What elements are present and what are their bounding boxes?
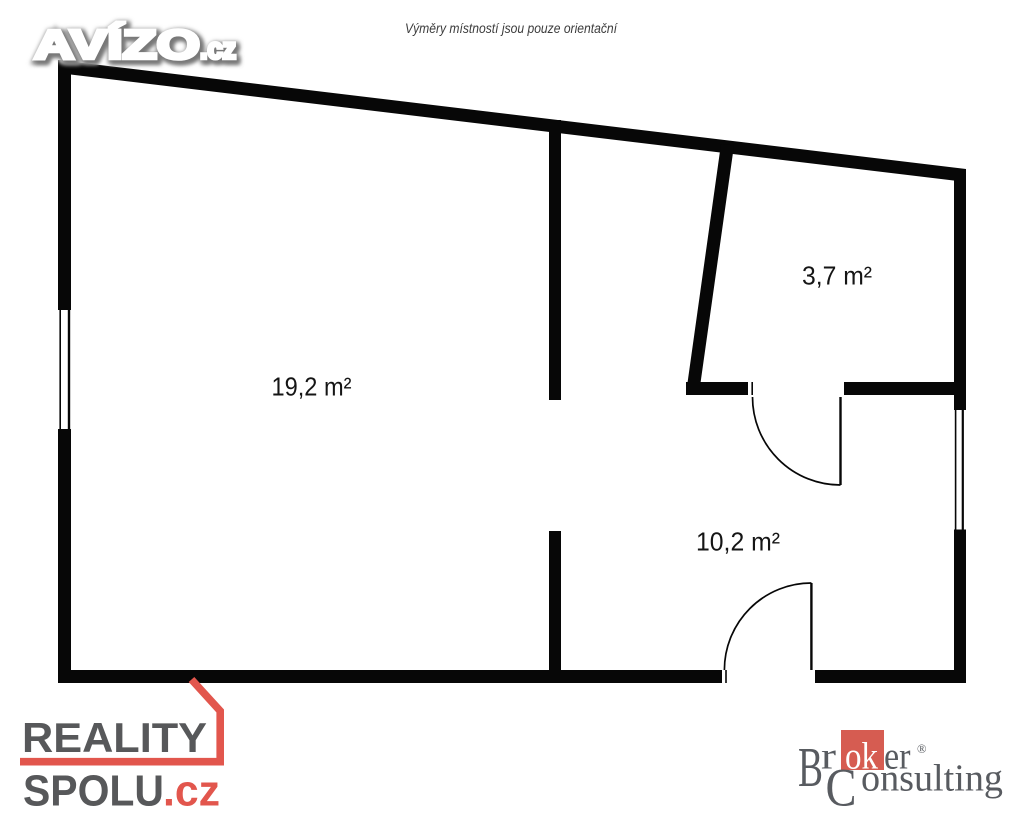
- svg-text:Výměry místností jsou pouze or: Výměry místností jsou pouze orientační: [405, 21, 618, 36]
- svg-text:10,2 m²: 10,2 m²: [696, 527, 780, 557]
- svg-text:.cz: .cz: [163, 767, 220, 816]
- svg-text:onsulting: onsulting: [861, 758, 1003, 800]
- svg-text:C: C: [826, 758, 857, 818]
- svg-text:SPOLU: SPOLU: [23, 767, 164, 816]
- svg-text:AVÍZO: AVÍZO: [34, 22, 200, 68]
- svg-text:19,2 m²: 19,2 m²: [272, 372, 352, 402]
- svg-text:3,7 m²: 3,7 m²: [802, 261, 872, 291]
- svg-text:®: ®: [917, 742, 927, 756]
- svg-text:.cz: .cz: [200, 33, 236, 66]
- svg-text:B: B: [798, 737, 823, 799]
- svg-text:REALITY: REALITY: [22, 714, 207, 761]
